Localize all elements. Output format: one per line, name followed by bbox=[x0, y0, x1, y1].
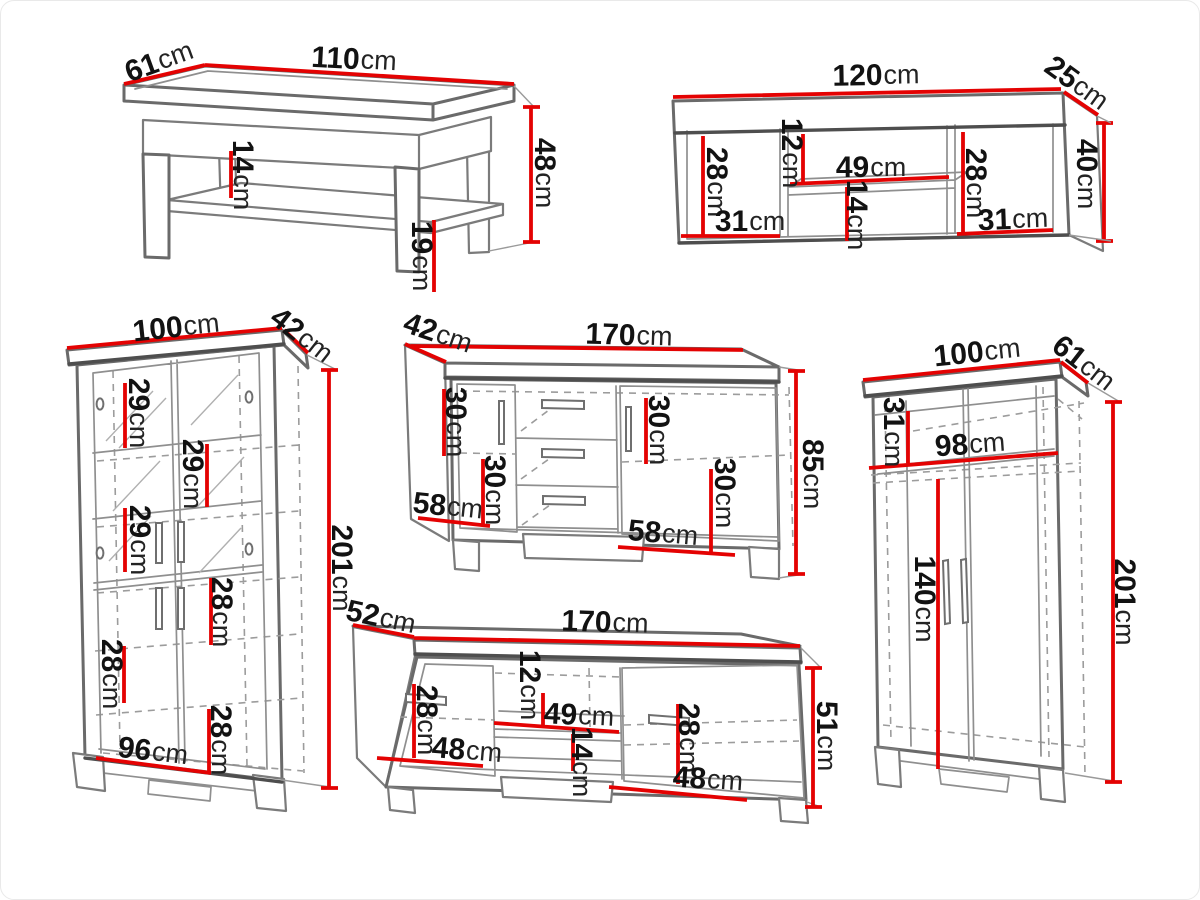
sideboard-drawing: 42cm 170cm 85cm 30cm 30cm 58cm 30cm 30cm… bbox=[399, 306, 829, 579]
display-cabinet-gap1-label: 29cm bbox=[123, 378, 156, 448]
wall-shelf-niche-width-label: 49cm bbox=[836, 151, 906, 184]
display-cabinet-door-catch bbox=[246, 543, 253, 554]
coffee-table-shelf bbox=[167, 183, 503, 233]
wardrobe-door-height-label: 140cm bbox=[909, 555, 942, 642]
coffee-table-extension-lines bbox=[489, 86, 534, 251]
tv-stand-drawing: 52cm 170cm 51cm 28cm 48cm 12cm 49cm 14cm… bbox=[343, 594, 843, 823]
display-cabinet-gap2-label: 29cm bbox=[177, 439, 210, 509]
tv-stand-width-label: 170cm bbox=[561, 604, 649, 640]
display-cabinet-gap5-label: 28cm bbox=[96, 639, 129, 709]
wardrobe-drawing: 100cm 61cm 201cm 31cm 98cm 140cm bbox=[863, 328, 1142, 802]
display-cabinet-body bbox=[77, 346, 282, 781]
sideboard-left-gap2-label: 30cm bbox=[479, 455, 512, 525]
coffee-table-top bbox=[124, 66, 514, 120]
coffee-table-width-label: 110cm bbox=[310, 40, 397, 77]
wall-shelf-niche-bottom-label: 14cm bbox=[841, 180, 874, 250]
wall-shelf-drawing: 120cm 25cm 40cm 28cm 12cm 49cm 14cm 28cm… bbox=[673, 49, 1115, 251]
tv-stand-left-width-label: 48cm bbox=[431, 730, 504, 769]
display-cabinet-gap3-label: 29cm bbox=[124, 505, 157, 575]
wall-shelf-width-label: 120cm bbox=[832, 58, 920, 93]
wall-shelf-height-label: 40cm bbox=[1071, 139, 1104, 209]
display-cabinet-door-catch bbox=[97, 547, 104, 558]
wall-shelf-left-width-label: 31cm bbox=[715, 205, 785, 238]
sideboard-height-label: 85cm bbox=[797, 439, 830, 509]
coffee-table-drawing: 61cm 110cm 48cm 14cm 19cm bbox=[120, 33, 561, 292]
wall-shelf-niche-top-label: 12cm bbox=[776, 118, 809, 188]
display-cabinet-gap4-label: 28cm bbox=[206, 577, 239, 647]
tv-stand-niche-bottom-label: 14cm bbox=[566, 727, 599, 797]
sideboard-right-gap1-label: 30cm bbox=[643, 395, 676, 465]
display-cabinet-door-catch bbox=[246, 391, 253, 402]
sideboard-left-gap1-label: 30cm bbox=[440, 387, 473, 457]
sideboard-right-gap2-label: 30cm bbox=[709, 458, 742, 528]
coffee-table-apron bbox=[143, 117, 491, 169]
wardrobe-inner-width-label: 98cm bbox=[934, 425, 1007, 463]
furniture-diagram: 61cm 110cm 48cm 14cm 19cm 120cm 25cm 40c… bbox=[1, 1, 1200, 900]
sideboard-width-label: 170cm bbox=[585, 317, 673, 353]
coffee-table-height-label: 48cm bbox=[529, 138, 562, 208]
coffee-table-floor-clearance-label: 19cm bbox=[406, 221, 439, 291]
coffee-table-shelf-clearance-label: 14cm bbox=[227, 140, 260, 210]
display-cabinet-drawing: 100cm 42cm 201cm 29cm 29cm 29cm 28cm 28c… bbox=[67, 300, 359, 811]
display-cabinet-door-catch bbox=[97, 398, 104, 409]
furniture-dimension-sheet: 61cm 110cm 48cm 14cm 19cm 120cm 25cm 40c… bbox=[0, 0, 1200, 900]
wardrobe-top-gap-label: 31cm bbox=[878, 397, 911, 467]
tv-stand-height-label: 51cm bbox=[811, 701, 844, 771]
tv-stand-niche-top-label: 12cm bbox=[514, 650, 547, 720]
wall-shelf-right-width-label: 31cm bbox=[977, 201, 1048, 236]
tv-stand-right-width-label: 48cm bbox=[672, 760, 745, 798]
sideboard-right-width-label: 58cm bbox=[627, 513, 700, 552]
wardrobe-height-label: 201cm bbox=[1109, 558, 1142, 645]
display-cabinet-gap6-label: 28cm bbox=[205, 705, 238, 775]
